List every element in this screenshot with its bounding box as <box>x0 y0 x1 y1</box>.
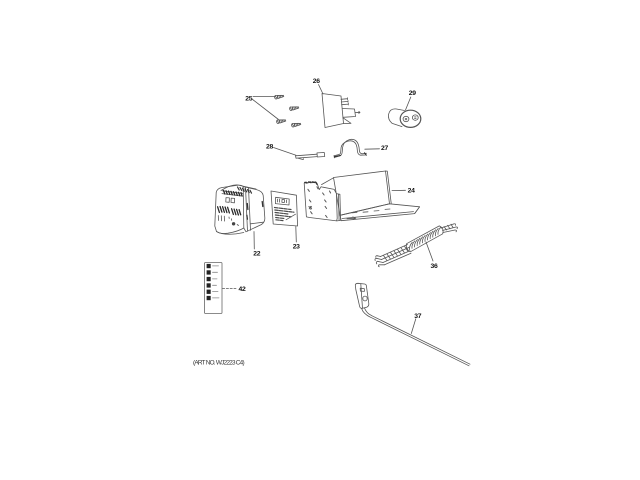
svg-text:27: 27 <box>381 145 388 152</box>
svg-text:(ART NO. WJ2223 C4): (ART NO. WJ2223 C4) <box>193 360 244 367</box>
svg-text:37: 37 <box>414 313 421 320</box>
svg-text:36: 36 <box>431 263 438 270</box>
svg-text:24: 24 <box>408 188 415 195</box>
svg-text:22: 22 <box>253 251 260 258</box>
svg-text:42: 42 <box>239 286 246 293</box>
svg-text:23: 23 <box>293 244 300 251</box>
svg-text:26: 26 <box>313 78 320 85</box>
svg-text:28: 28 <box>266 144 273 151</box>
svg-text:29: 29 <box>409 90 416 97</box>
